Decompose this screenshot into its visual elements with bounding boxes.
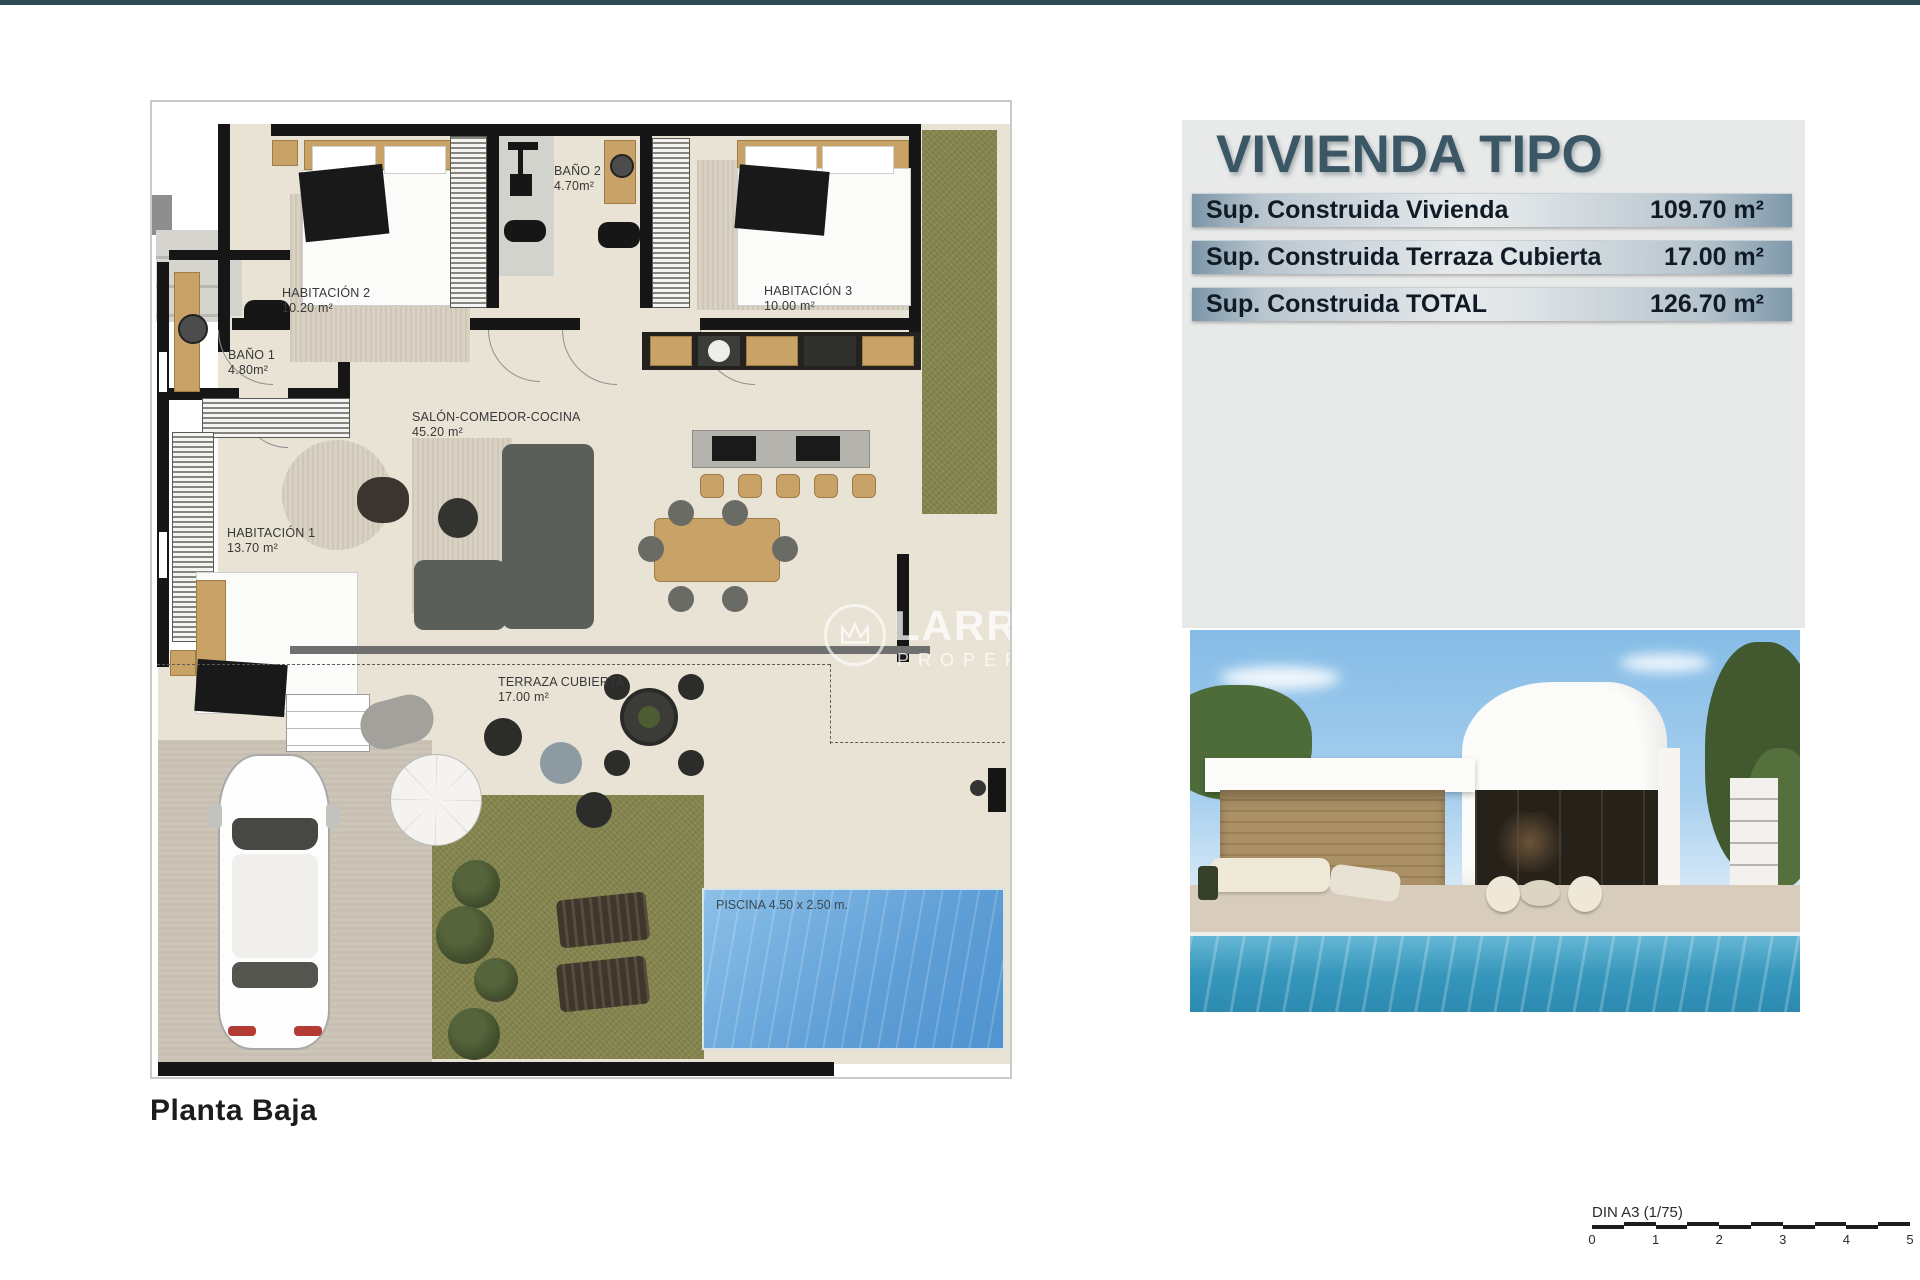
scale-segment bbox=[1719, 1222, 1751, 1229]
pouf bbox=[540, 742, 582, 784]
outdoor-shower-head bbox=[970, 780, 986, 796]
room-name: TERRAZA CUBIERTA bbox=[498, 675, 624, 690]
wall-segment bbox=[640, 136, 652, 308]
car-mirror bbox=[326, 804, 340, 828]
wall-segment bbox=[700, 318, 921, 330]
watermark-subtitle: PROPERTIES bbox=[897, 650, 1012, 671]
patio-chair bbox=[1486, 876, 1520, 912]
washer-icon bbox=[708, 340, 730, 362]
cooktop bbox=[712, 436, 756, 461]
room-name: HABITACIÓN 1 bbox=[227, 526, 315, 541]
bed2-throw bbox=[299, 164, 390, 242]
room-label-bano-2: BAÑO 2 4.70m² bbox=[554, 164, 601, 194]
scale-segment bbox=[1751, 1222, 1783, 1229]
wardrobe bbox=[202, 398, 350, 438]
tree-icon bbox=[474, 958, 518, 1002]
tree-icon bbox=[436, 906, 494, 964]
room-area: 10.20 m² bbox=[282, 301, 370, 316]
surface-label: Sup. Construida TOTAL bbox=[1206, 290, 1487, 319]
scale-segment bbox=[1878, 1222, 1910, 1229]
car-rear-window bbox=[232, 962, 318, 988]
scale-tick: 5 bbox=[1906, 1232, 1913, 1247]
room-name: HABITACIÓN 2 bbox=[282, 286, 370, 301]
outdoor-shower bbox=[988, 768, 1006, 812]
render-pool bbox=[1190, 932, 1800, 1012]
scale-bar bbox=[1592, 1222, 1910, 1229]
villa-pillar bbox=[1658, 748, 1680, 890]
kitchen-cabinet bbox=[746, 336, 798, 366]
scale-segment bbox=[1624, 1222, 1656, 1229]
wardrobe bbox=[652, 138, 690, 308]
pool: PISCINA 4.50 x 2.50 m. bbox=[702, 888, 1005, 1050]
surface-value: 109.70 m² bbox=[1650, 196, 1764, 225]
room-area: 17.00 m² bbox=[498, 690, 624, 705]
surface-label: Sup. Construida Vivienda bbox=[1206, 196, 1508, 225]
sun-lounger bbox=[556, 955, 651, 1012]
boundary-wall bbox=[158, 1062, 834, 1076]
pool-ripples bbox=[1190, 936, 1800, 1012]
chair bbox=[668, 586, 694, 612]
room-label-habitacion-2: HABITACIÓN 2 10.20 m² bbox=[282, 286, 370, 316]
outdoor-chair bbox=[678, 750, 704, 776]
chair bbox=[668, 500, 694, 526]
oven bbox=[804, 336, 856, 366]
surface-label: Sup. Construida Terraza Cubierta bbox=[1206, 243, 1601, 272]
wardrobe bbox=[450, 136, 487, 308]
chair bbox=[722, 586, 748, 612]
scale-tick: 2 bbox=[1716, 1232, 1723, 1247]
car-mirror bbox=[208, 804, 222, 828]
pouf bbox=[576, 792, 612, 828]
pool-label: PISCINA 4.50 x 2.50 m. bbox=[716, 898, 848, 912]
scale-segment bbox=[1687, 1222, 1719, 1229]
kitchen-cabinet bbox=[650, 336, 692, 366]
scale-segment bbox=[1656, 1222, 1688, 1229]
stool bbox=[814, 474, 838, 498]
scale-tick: 0 bbox=[1588, 1232, 1595, 1247]
boundary-dashed bbox=[157, 664, 830, 665]
room-name: BAÑO 1 bbox=[228, 348, 275, 363]
panel-title: VIVIENDA TIPO bbox=[1216, 124, 1603, 185]
scale-tick: 3 bbox=[1779, 1232, 1786, 1247]
car-windshield bbox=[232, 818, 318, 850]
car-roof bbox=[232, 854, 318, 958]
villa-render bbox=[1190, 630, 1800, 1012]
room-name: HABITACIÓN 3 bbox=[764, 284, 852, 299]
shower-bar bbox=[508, 142, 538, 150]
pouf bbox=[484, 718, 522, 756]
patio-table bbox=[1520, 880, 1560, 906]
bath2-floor bbox=[499, 136, 554, 276]
shower-pipe bbox=[518, 150, 523, 174]
scale-tick: 4 bbox=[1843, 1232, 1850, 1247]
floor-plan: PISCINA 4.50 x 2.50 m. HABITACIÓN 2 10.2… bbox=[150, 100, 1012, 1079]
surface-row: Sup. Construida Vivienda 109.70 m² bbox=[1192, 193, 1792, 227]
room-label-bano-1: BAÑO 1 4.80m² bbox=[228, 348, 275, 378]
window bbox=[159, 352, 167, 392]
scale-label: DIN A3 (1/75) bbox=[1592, 1204, 1683, 1221]
surface-row: Sup. Construida Terraza Cubierta 17.00 m… bbox=[1192, 240, 1792, 274]
scale-segment bbox=[1815, 1222, 1847, 1229]
outdoor-sofa bbox=[1210, 858, 1330, 892]
window bbox=[159, 532, 167, 578]
armchair bbox=[357, 477, 409, 523]
scale-segment bbox=[1592, 1222, 1624, 1229]
plant-icon bbox=[1198, 866, 1218, 900]
patio-chair bbox=[1568, 876, 1602, 912]
brochure-page: PISCINA 4.50 x 2.50 m. HABITACIÓN 2 10.2… bbox=[0, 0, 1920, 1280]
stool bbox=[738, 474, 762, 498]
boundary-dashed bbox=[830, 742, 1005, 743]
shower-head bbox=[510, 174, 532, 196]
dining-table bbox=[654, 518, 780, 582]
garden-steps bbox=[286, 694, 370, 752]
room-label-terraza: TERRAZA CUBIERTA 17.00 m² bbox=[498, 675, 624, 705]
outdoor-stairs bbox=[1730, 778, 1778, 896]
car-taillight bbox=[228, 1026, 256, 1036]
parasol bbox=[390, 754, 482, 846]
room-area: 13.70 m² bbox=[227, 541, 315, 556]
chair bbox=[638, 536, 664, 562]
toilet bbox=[598, 222, 640, 248]
scale-segment bbox=[1783, 1222, 1815, 1229]
scale-ticks: 0 1 2 3 4 5 bbox=[1592, 1232, 1910, 1248]
room-area: 45.20 m² bbox=[412, 425, 581, 440]
plant-icon bbox=[638, 706, 660, 728]
surface-row: Sup. Construida TOTAL 126.70 m² bbox=[1192, 287, 1792, 321]
scale-tick: 1 bbox=[1652, 1232, 1659, 1247]
chair bbox=[772, 536, 798, 562]
stool bbox=[776, 474, 800, 498]
wall-segment bbox=[487, 136, 499, 308]
stool bbox=[852, 474, 876, 498]
surface-value: 17.00 m² bbox=[1664, 243, 1764, 272]
stool bbox=[700, 474, 724, 498]
room-name: SALÓN-COMEDOR-COCINA bbox=[412, 410, 581, 425]
outdoor-chair bbox=[604, 750, 630, 776]
room-label-habitacion-3: HABITACIÓN 3 10.00 m² bbox=[764, 284, 852, 314]
room-area: 10.00 m² bbox=[764, 299, 852, 314]
wall-segment bbox=[218, 124, 230, 352]
sun-lounger bbox=[556, 891, 651, 948]
sofa-chaise bbox=[414, 560, 506, 630]
villa-roof-band bbox=[1205, 758, 1475, 792]
tree-icon bbox=[448, 1008, 500, 1060]
kitchen-cabinet bbox=[862, 336, 914, 366]
basin bbox=[178, 314, 208, 344]
entry-pillar bbox=[152, 195, 172, 235]
room-area: 4.70m² bbox=[554, 179, 601, 194]
nightstand bbox=[170, 650, 196, 676]
bed3-throw bbox=[734, 164, 829, 236]
boundary-dashed bbox=[830, 664, 831, 744]
room-name: BAÑO 2 bbox=[554, 164, 601, 179]
wall-segment bbox=[169, 250, 291, 260]
car-taillight bbox=[294, 1026, 322, 1036]
cloud bbox=[1620, 654, 1710, 672]
floor-label: Planta Baja bbox=[150, 1094, 317, 1128]
surface-value: 126.70 m² bbox=[1650, 290, 1764, 319]
room-label-habitacion-1: HABITACIÓN 1 13.70 m² bbox=[227, 526, 315, 556]
watermark-brand: LARROSA bbox=[894, 602, 1012, 650]
interior-glow bbox=[1495, 812, 1565, 872]
coffee-table bbox=[438, 498, 478, 538]
top-accent-bar bbox=[0, 0, 1920, 5]
wall-segment bbox=[271, 124, 921, 136]
room-label-salon: SALÓN-COMEDOR-COCINA 45.20 m² bbox=[412, 410, 581, 440]
pillow bbox=[384, 146, 446, 174]
tree-icon bbox=[452, 860, 500, 908]
cooktop bbox=[796, 436, 840, 461]
bed1-throw bbox=[194, 659, 287, 717]
wall-segment bbox=[157, 262, 169, 667]
sofa bbox=[502, 444, 594, 629]
info-panel: VIVIENDA TIPO Sup. Construida Vivienda 1… bbox=[1182, 120, 1805, 628]
room-area: 4.80m² bbox=[228, 363, 275, 378]
nightstand bbox=[272, 140, 298, 166]
sink bbox=[504, 220, 546, 242]
pillow bbox=[822, 146, 894, 174]
scale-segment bbox=[1846, 1222, 1878, 1229]
garden-strip-right bbox=[922, 130, 997, 514]
watermark-logo-icon bbox=[824, 604, 886, 666]
chair bbox=[722, 500, 748, 526]
crown-icon bbox=[833, 613, 877, 657]
basin bbox=[610, 154, 634, 178]
outdoor-chair bbox=[678, 674, 704, 700]
